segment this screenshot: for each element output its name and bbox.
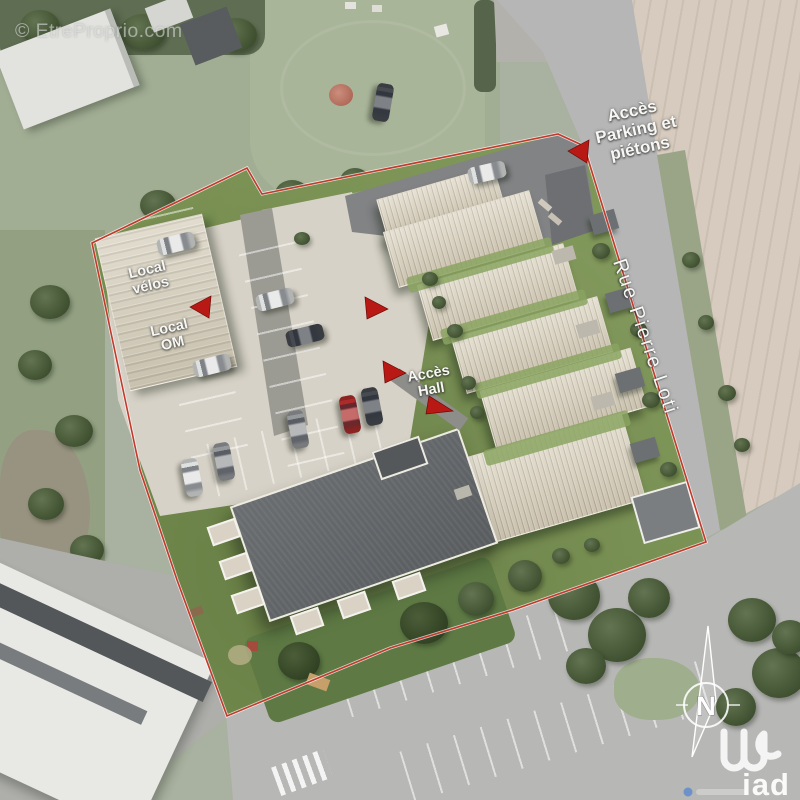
site-plan-aerial-view: N iad Accès Parking et piétons Rue Pierr…: [0, 0, 800, 800]
map-attribution-mark: [684, 788, 749, 797]
path-arrow-icon: [365, 297, 388, 319]
attribution-blur-text: [696, 789, 748, 795]
site-boundary-line: [92, 134, 706, 716]
compass-north-icon: N: [676, 626, 740, 757]
compass-north-label: N: [696, 691, 716, 721]
watermark: © EtreProprio.com: [15, 20, 182, 43]
attribution-dot-icon: [684, 788, 693, 797]
iad-logo-text: iad: [742, 767, 790, 800]
iad-logo-swirl-icon: [724, 732, 778, 768]
site-boundary-halo: [92, 134, 706, 716]
